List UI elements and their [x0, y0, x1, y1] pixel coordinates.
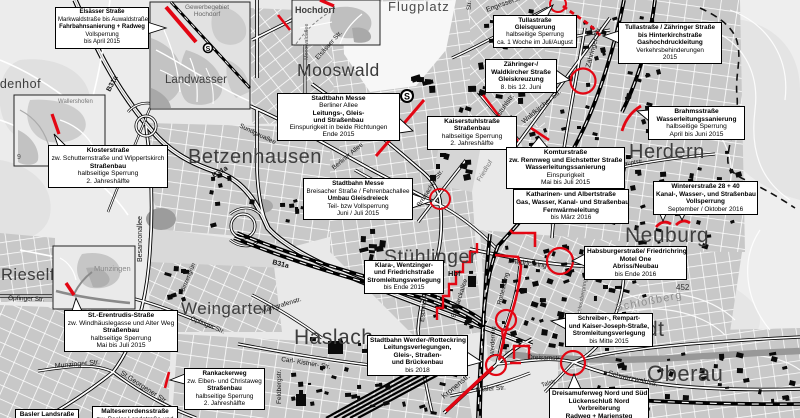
svg-text:Besanconallee: Besanconallee: [137, 216, 144, 262]
svg-text:Hochdorf: Hochdorf: [295, 5, 336, 15]
svg-text:Dreisamstr.: Dreisamstr.: [528, 354, 561, 362]
svg-text:Weingarten: Weingarten: [181, 299, 273, 318]
svg-text:Wallershofen: Wallershofen: [58, 99, 93, 105]
svg-text:Opfinger Str.: Opfinger Str.: [8, 295, 45, 303]
svg-text:Haslach: Haslach: [294, 326, 373, 349]
svg-text:S: S: [206, 46, 211, 53]
svg-text:Str.: Str.: [467, 1, 473, 10]
svg-text:Mooswaldallee: Mooswaldallee: [304, 24, 310, 60]
svg-text:Landwasser: Landwasser: [165, 74, 227, 86]
svg-text:9: 9: [17, 154, 21, 161]
svg-text:452: 452: [676, 283, 690, 292]
svg-text:Feldbergstr.: Feldbergstr.: [276, 369, 283, 404]
svg-text:Hbf: Hbf: [448, 269, 461, 278]
svg-text:Mundenhof: Mundenhof: [0, 77, 41, 91]
svg-text:Betzenhausen: Betzenhausen: [188, 146, 322, 168]
svg-text:Gewerbegebiet: Gewerbegebiet: [185, 4, 229, 11]
svg-text:Flugplatz: Flugplatz: [388, 0, 450, 14]
svg-text:Neuburg: Neuburg: [625, 224, 709, 247]
svg-text:Hochdorf: Hochdorf: [194, 11, 221, 18]
svg-text:Mooswald: Mooswald: [297, 60, 380, 80]
svg-text:S: S: [404, 92, 410, 102]
svg-text:Munzingen: Munzingen: [94, 264, 131, 273]
svg-text:Werderring: Werderring: [490, 326, 497, 356]
svg-text:Oberau: Oberau: [647, 361, 723, 386]
